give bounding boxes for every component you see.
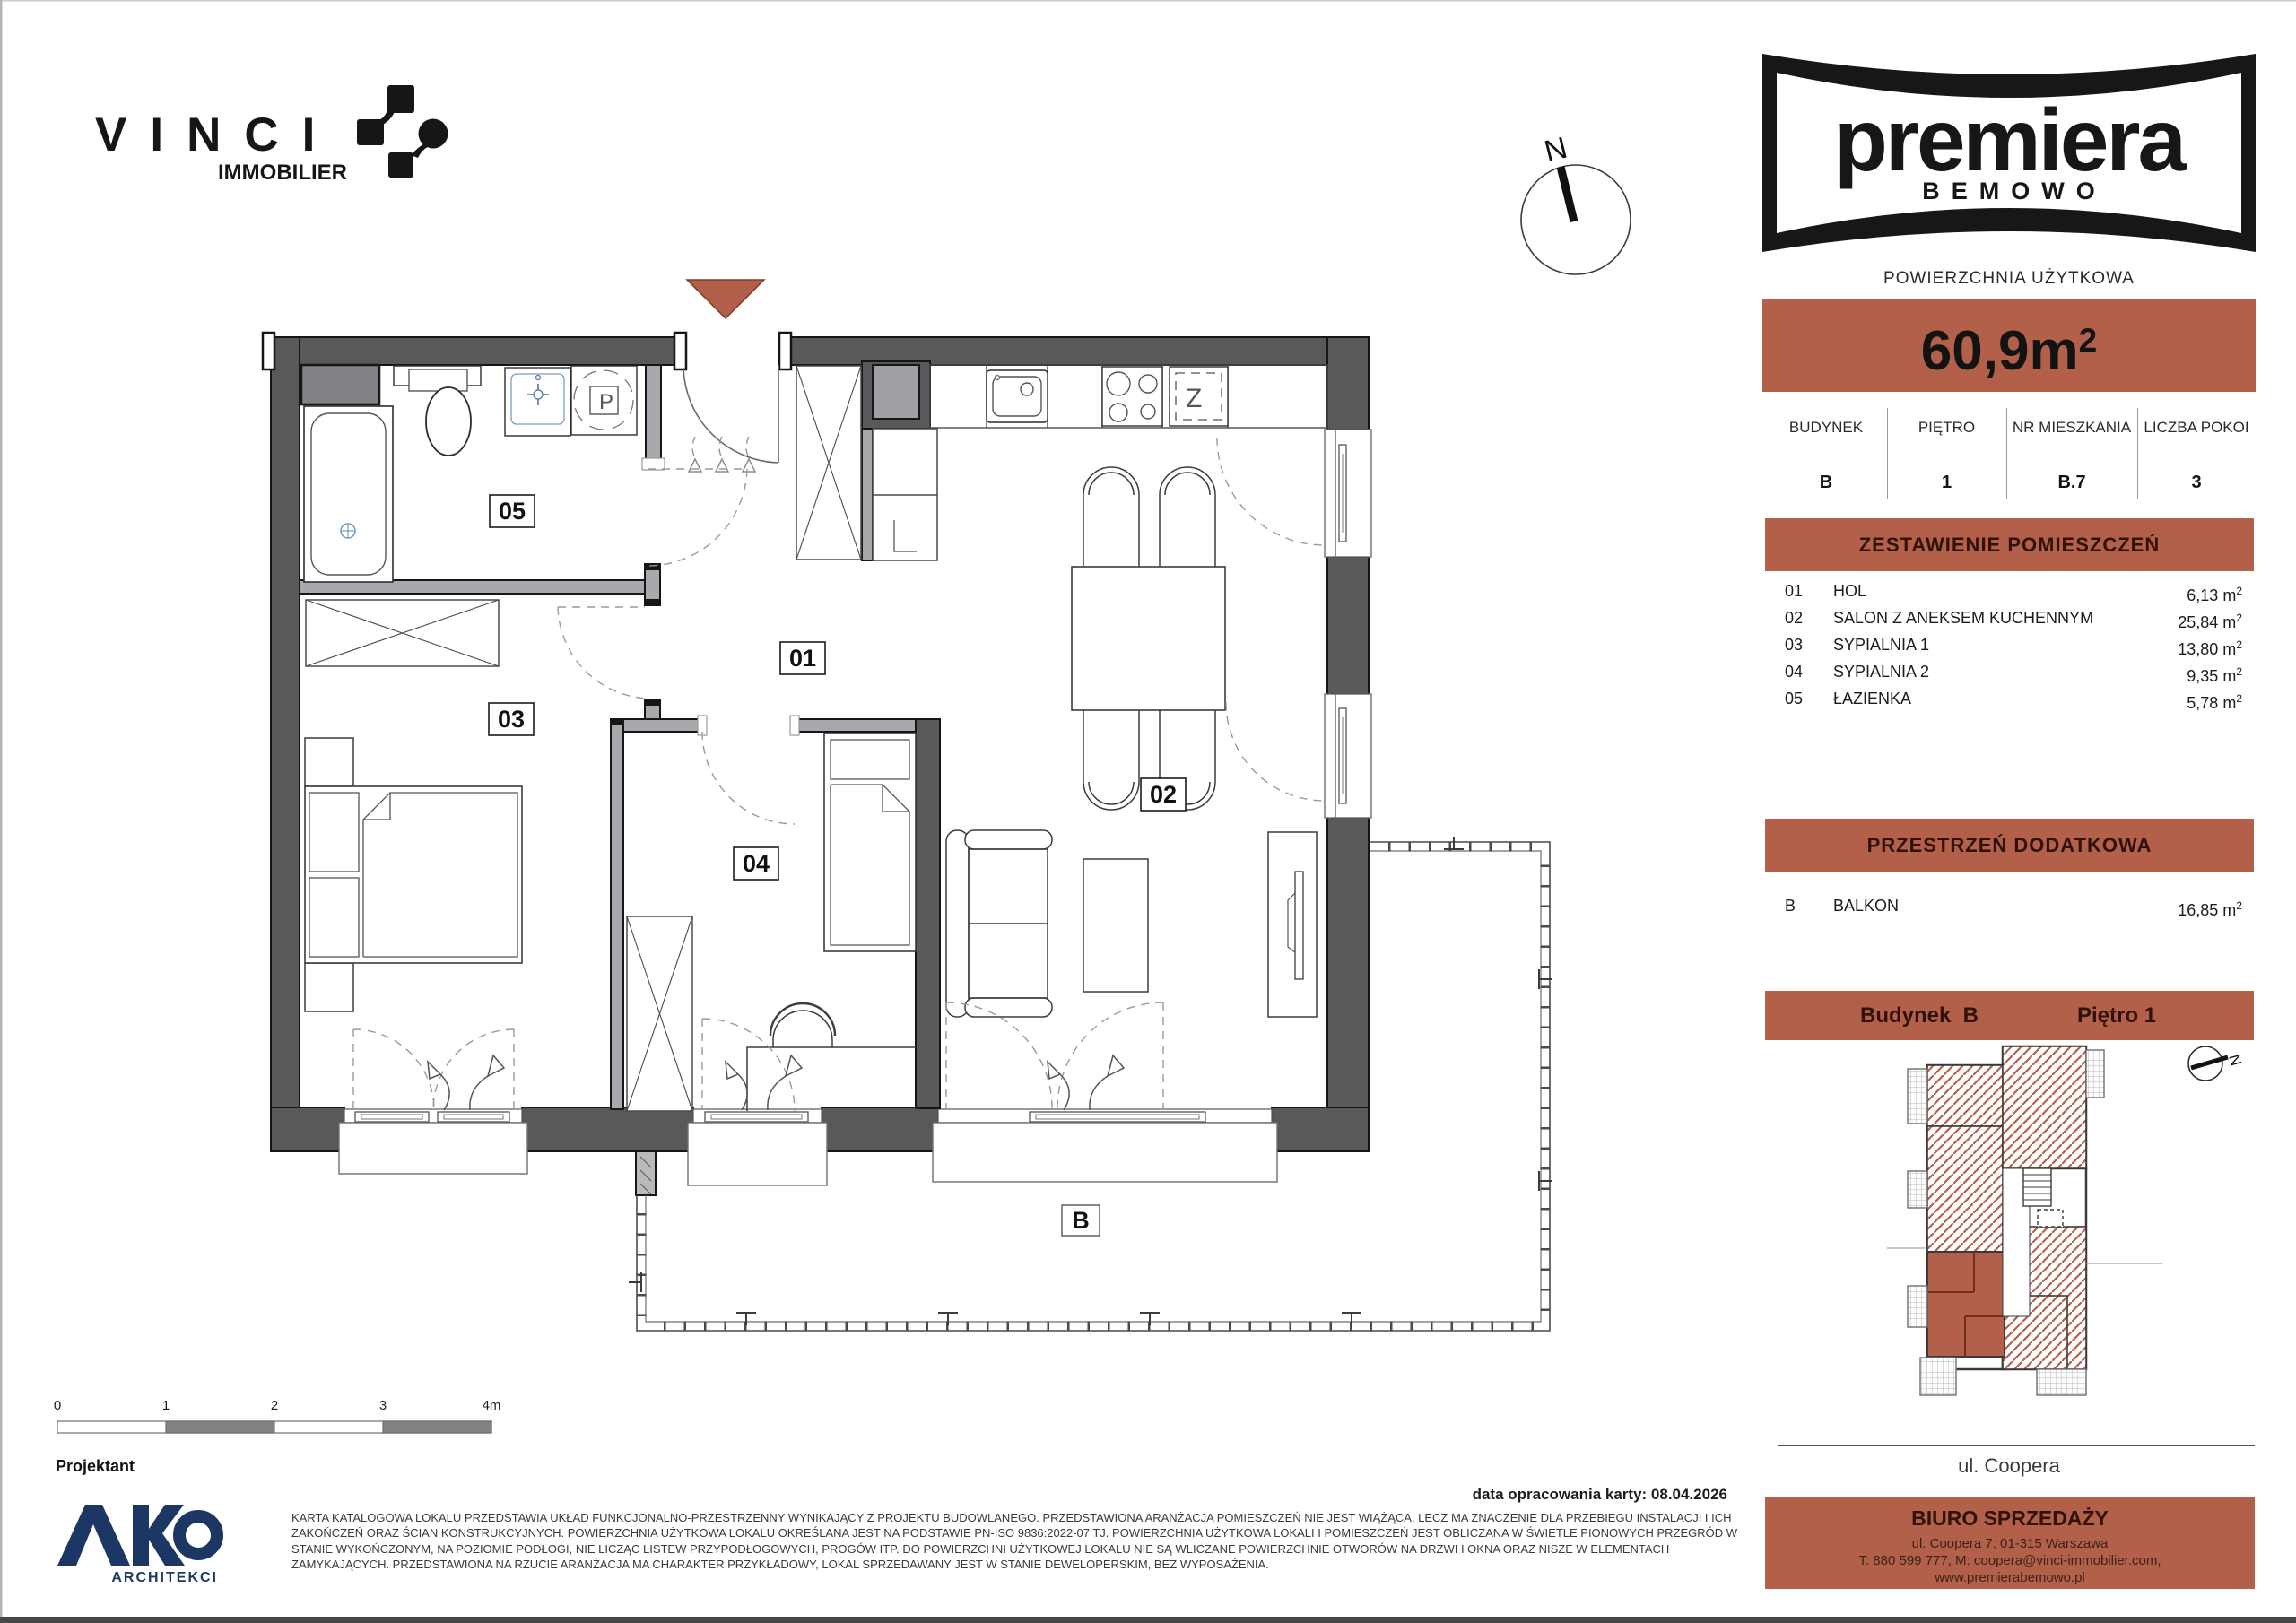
svg-text:N: N xyxy=(1541,131,1570,169)
svg-text:0: 0 xyxy=(54,1398,61,1413)
svg-text:B: B xyxy=(1072,1207,1090,1234)
svg-text:Projektant: Projektant xyxy=(56,1457,135,1475)
svg-text:BEMOWO: BEMOWO xyxy=(1922,178,2107,204)
svg-text:05: 05 xyxy=(499,498,526,525)
svg-text:3: 3 xyxy=(379,1398,387,1413)
svg-text:VINCI: VINCI xyxy=(95,108,338,161)
svg-text:1: 1 xyxy=(162,1398,170,1413)
svg-text:02: 02 xyxy=(1150,781,1177,808)
svg-text:ARCHITEKCI: ARCHITEKCI xyxy=(111,1570,218,1585)
svg-text:03: 03 xyxy=(498,706,525,733)
svg-text:4m: 4m xyxy=(483,1398,501,1413)
svg-text:IMMOBILIER: IMMOBILIER xyxy=(218,161,347,185)
svg-text:Z: Z xyxy=(1186,384,1202,413)
svg-text:01: 01 xyxy=(789,645,816,672)
svg-text:2: 2 xyxy=(271,1398,278,1413)
svg-text:N: N xyxy=(2225,1053,2245,1068)
svg-text:04: 04 xyxy=(743,850,770,877)
svg-text:premiera: premiera xyxy=(1834,91,2188,189)
svg-text:P: P xyxy=(599,390,613,414)
